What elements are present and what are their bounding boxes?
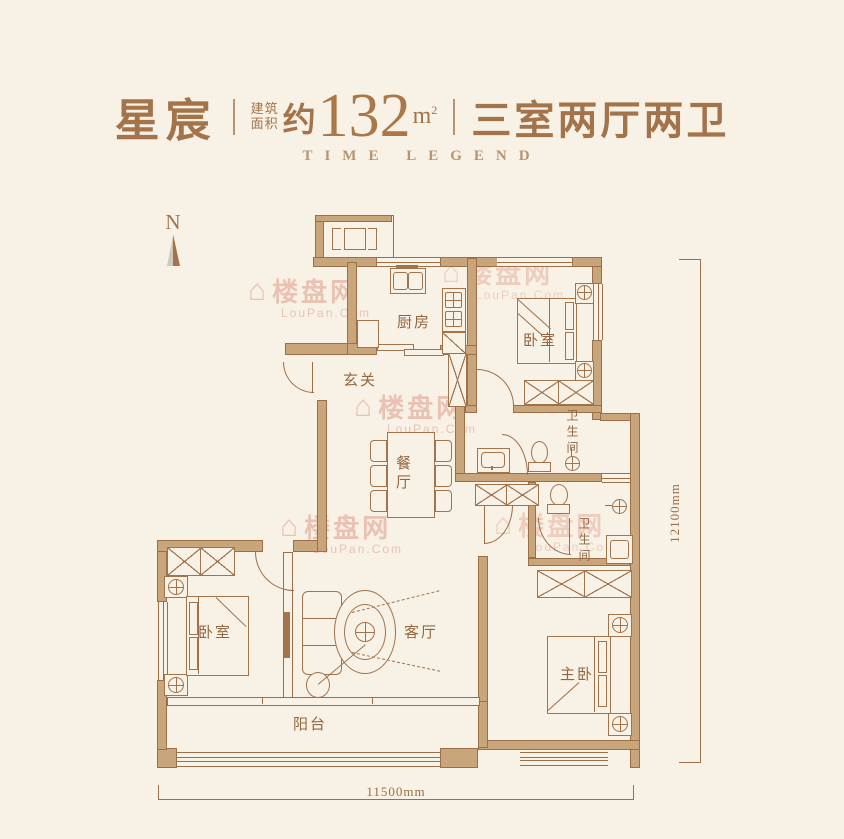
wall-segment — [478, 700, 488, 748]
wardrobe — [537, 570, 586, 598]
sink-tap — [396, 265, 418, 268]
title-divider — [233, 99, 235, 135]
floor-drain — [612, 499, 627, 514]
dimension-line-right — [700, 259, 701, 763]
sink-basin — [408, 272, 423, 290]
bed-line — [594, 636, 595, 712]
page-title: 星宸 建筑 面积 约 132 m2 三室两厅两卫 — [0, 84, 844, 149]
room-label-bathroom-top: 卫生间 — [564, 409, 581, 457]
dimension-tick — [633, 785, 634, 800]
room-label-bedroom-top: 卧室 — [523, 329, 557, 350]
balcony-slider — [167, 697, 480, 706]
slider-divider — [262, 697, 263, 704]
area-label-line2: 面积 — [251, 117, 279, 132]
wardrobe — [584, 570, 632, 598]
burner — [445, 311, 462, 327]
lamp-icon — [612, 617, 628, 633]
brand-subtitle: TIME LEGEND — [0, 148, 844, 165]
room-label-living: 客厅 — [404, 621, 438, 642]
dimension-bottom: 11500mm — [330, 784, 462, 800]
sofa-cushion-line — [302, 645, 340, 646]
pillow — [598, 641, 607, 673]
area-label-line1: 建筑 — [251, 102, 279, 117]
wall-segment — [157, 748, 177, 768]
room-label-balcony: 阳台 — [293, 713, 327, 734]
area-approx: 约 — [283, 93, 316, 141]
room-label-bathroom-mid: 卫生间 — [576, 517, 593, 565]
room-label-dining: 餐厅 — [392, 455, 413, 493]
basin — [610, 540, 629, 559]
pillow — [565, 332, 574, 360]
north-indicator: N — [158, 210, 188, 235]
basin — [481, 452, 505, 468]
wall-segment — [592, 266, 602, 284]
wall-segment — [315, 215, 392, 222]
project-name: 星宸 — [115, 84, 217, 149]
dimension-tick — [679, 762, 701, 763]
area-value: 132 — [318, 89, 411, 145]
fridge — [442, 332, 466, 354]
wall-segment — [455, 400, 465, 482]
ceiling-lamp-icon — [355, 622, 375, 642]
floor-drain — [565, 456, 580, 471]
lamp-icon — [612, 716, 628, 732]
wall-segment — [455, 473, 602, 482]
room-label-bedroom-left: 卧室 — [198, 621, 232, 642]
area-unit: m2 — [413, 103, 438, 130]
dimension-right: 12100mm — [667, 458, 683, 568]
toilet-tank — [528, 462, 551, 472]
hall-cabinet — [506, 484, 539, 506]
kitchen-cabinet — [357, 320, 379, 348]
flue-shaft — [448, 353, 467, 407]
window — [497, 257, 573, 267]
basin-dot — [491, 466, 493, 470]
window — [602, 473, 630, 483]
entry-door-arc — [283, 362, 314, 393]
chair — [435, 465, 452, 487]
slider-divider — [372, 697, 373, 704]
elevator-icon — [344, 228, 366, 250]
hall-cabinet — [475, 484, 508, 506]
wardrobe — [524, 380, 560, 405]
lamp-icon — [168, 579, 184, 595]
toilet-bowl — [550, 484, 568, 506]
hall-door-leaf — [484, 505, 485, 543]
drain-stem — [605, 505, 612, 506]
toilet-bowl — [531, 441, 548, 464]
pillow — [189, 637, 198, 670]
wall-segment — [513, 405, 602, 413]
bedroom-left-door-leaf — [292, 552, 293, 590]
wall-segment — [440, 748, 478, 768]
chair — [435, 490, 452, 512]
lamp-icon — [577, 363, 592, 378]
floorplan-page: 星宸 建筑 面积 约 132 m2 三室两厅两卫 TIME LEGEND N ⌂… — [0, 0, 844, 839]
room-label-entry: 玄关 — [343, 369, 377, 390]
room-label-master: 主卧 — [560, 663, 594, 684]
chair — [435, 440, 452, 462]
wardrobe — [200, 547, 235, 576]
sofa-cushion-line — [302, 618, 340, 619]
house-icon: ⌂ — [354, 392, 375, 422]
pillow — [598, 675, 607, 707]
dimension-tick — [158, 785, 159, 800]
chair — [370, 465, 387, 487]
elevator-bracket-left — [332, 228, 341, 250]
house-icon: ⌂ — [248, 276, 269, 306]
bathroom-mid-door-leaf — [569, 518, 570, 554]
wall-segment — [313, 257, 377, 267]
lamp-icon — [577, 285, 592, 300]
title-divider — [453, 99, 455, 135]
north-label: N — [158, 210, 188, 235]
pillow — [189, 602, 198, 635]
wardrobe — [167, 547, 202, 576]
kitchen-sliding-door — [404, 349, 444, 356]
area-label: 建筑 面积 — [251, 102, 279, 132]
window — [593, 284, 603, 340]
chair — [370, 490, 387, 512]
pillow — [565, 302, 574, 330]
toilet-tank — [547, 504, 570, 514]
elevator-bracket-right — [368, 228, 377, 250]
room-label-kitchen: 厨房 — [397, 311, 431, 332]
lamp-icon — [168, 677, 184, 693]
sink-basin — [393, 272, 408, 290]
chair — [370, 440, 387, 462]
dimension-tick — [679, 259, 701, 260]
compass-needle-dark — [173, 234, 180, 266]
window — [520, 752, 608, 766]
window — [158, 602, 168, 680]
bedroom-top-door-arc — [477, 369, 514, 406]
wall-segment — [478, 740, 640, 750]
wall-segment — [317, 400, 327, 552]
layout-text: 三室两厅两卫 — [471, 88, 729, 146]
tv-unit — [284, 612, 290, 658]
burner — [445, 292, 462, 308]
wardrobe — [558, 380, 594, 405]
house-icon: ⌂ — [280, 512, 301, 542]
wall-segment — [467, 258, 477, 407]
entry-door-leaf — [312, 362, 313, 393]
wall-segment — [347, 262, 357, 350]
balcony-railing — [177, 752, 440, 767]
bedroom-left-door-arc — [255, 552, 294, 591]
wall-segment — [478, 556, 488, 702]
